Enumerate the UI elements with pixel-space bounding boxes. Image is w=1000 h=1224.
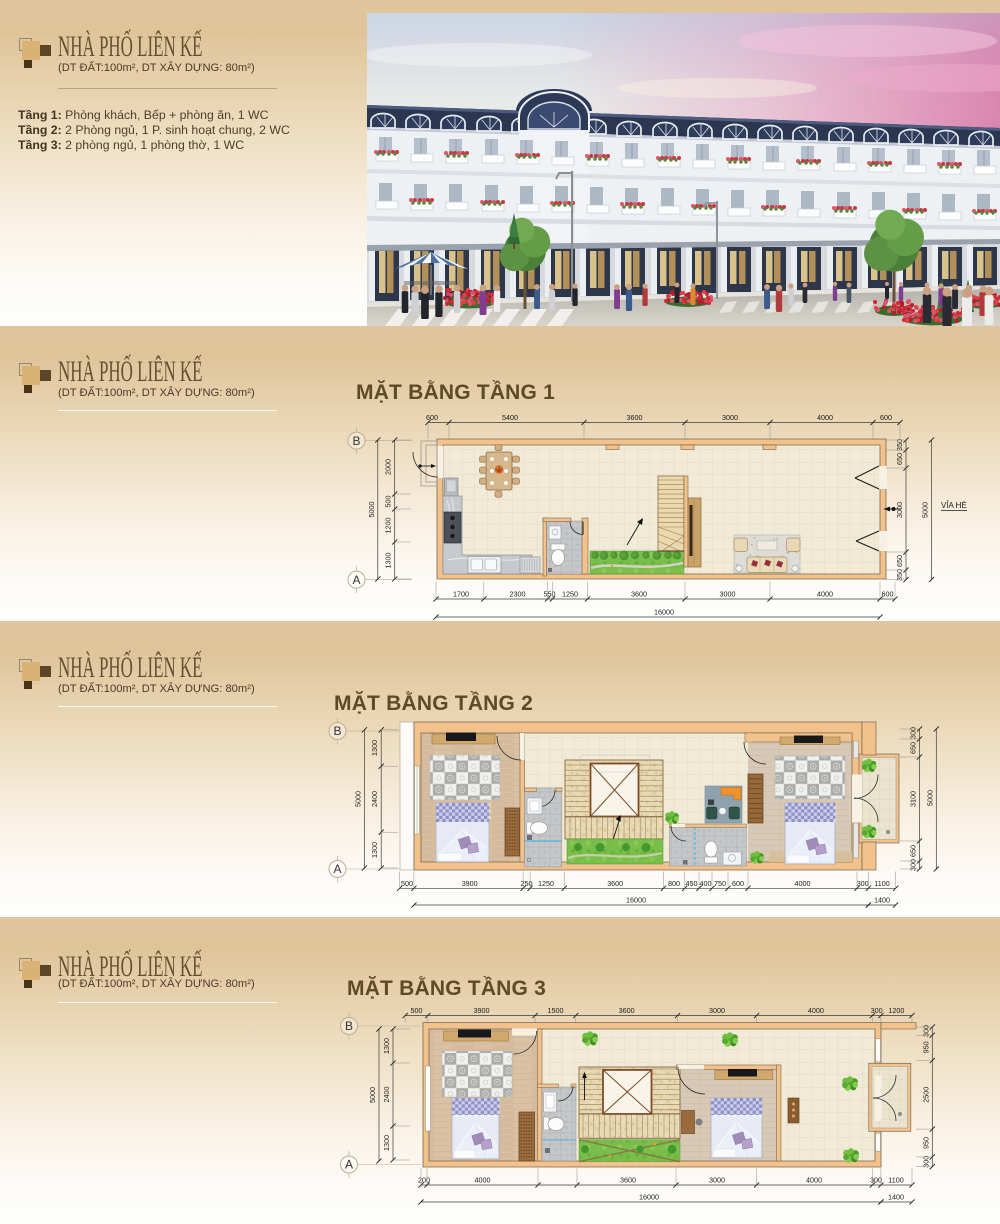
svg-text:1300: 1300 [370,740,379,756]
svg-text:2300: 2300 [510,590,526,599]
svg-text:4000: 4000 [817,413,833,422]
svg-text:600: 600 [732,879,744,888]
svg-text:3600: 3600 [627,413,643,422]
svg-text:300: 300 [871,1006,883,1015]
svg-text:3000: 3000 [720,590,736,599]
svg-text:600: 600 [882,590,894,599]
svg-text:350: 350 [895,439,904,451]
svg-text:1250: 1250 [562,590,578,599]
svg-text:A: A [345,1158,353,1172]
svg-text:B: B [352,434,360,448]
svg-text:1300: 1300 [384,553,393,569]
svg-text:250: 250 [521,879,533,888]
svg-text:950: 950 [921,1137,930,1149]
svg-text:1700: 1700 [453,590,469,599]
svg-text:3900: 3900 [462,879,478,888]
svg-text:750: 750 [714,879,726,888]
svg-text:650: 650 [909,742,918,754]
svg-text:200: 200 [418,1176,430,1185]
svg-text:3000: 3000 [709,1006,725,1015]
svg-text:2400: 2400 [370,791,379,807]
svg-text:1400: 1400 [888,1193,904,1202]
svg-text:1400: 1400 [874,896,890,905]
svg-text:650: 650 [895,453,904,465]
svg-text:3600: 3600 [631,590,647,599]
svg-text:4000: 4000 [817,590,833,599]
svg-text:2000: 2000 [384,459,393,475]
svg-text:B: B [333,724,341,738]
svg-text:500: 500 [411,1006,423,1015]
svg-text:1300: 1300 [370,842,379,858]
svg-text:5000: 5000 [368,1087,377,1103]
svg-text:4000: 4000 [475,1176,491,1185]
svg-text:5000: 5000 [921,502,930,518]
svg-text:600: 600 [880,413,892,422]
svg-text:3000: 3000 [709,1176,725,1185]
svg-text:1100: 1100 [874,879,889,888]
svg-text:950: 950 [921,1041,930,1053]
svg-text:3900: 3900 [474,1006,490,1015]
svg-text:300: 300 [921,1156,930,1168]
svg-text:16000: 16000 [626,896,646,905]
svg-text:VỈA HÈ: VỈA HÈ [941,501,967,510]
svg-text:400: 400 [700,879,712,888]
svg-text:3600: 3600 [607,879,623,888]
svg-text:2500: 2500 [921,1087,930,1103]
svg-text:350: 350 [895,569,904,581]
svg-text:500: 500 [384,496,393,508]
svg-text:300: 300 [857,879,869,888]
svg-text:450: 450 [686,879,698,888]
svg-text:1200: 1200 [888,1006,904,1015]
svg-text:16000: 16000 [639,1193,659,1202]
svg-text:1200: 1200 [384,518,393,534]
svg-text:550: 550 [544,590,556,599]
svg-text:3000: 3000 [722,413,738,422]
svg-text:3600: 3600 [620,1176,636,1185]
svg-text:4000: 4000 [806,1176,822,1185]
svg-text:5000: 5000 [925,790,934,806]
svg-text:1250: 1250 [538,879,554,888]
svg-text:1300: 1300 [382,1038,391,1054]
svg-text:4000: 4000 [795,879,811,888]
svg-text:650: 650 [909,845,918,857]
svg-text:B: B [345,1019,353,1033]
svg-text:3000: 3000 [895,502,904,518]
svg-text:5000: 5000 [367,502,376,518]
svg-text:500: 500 [401,879,413,888]
svg-text:300: 300 [870,1176,882,1185]
svg-text:16000: 16000 [654,608,674,617]
svg-text:1100: 1100 [888,1176,903,1185]
svg-text:5400: 5400 [502,413,518,422]
svg-text:A: A [333,862,341,876]
svg-text:1500: 1500 [548,1006,564,1015]
svg-text:4000: 4000 [808,1006,824,1015]
svg-text:800: 800 [668,879,680,888]
svg-text:5000: 5000 [353,791,362,807]
svg-text:A: A [352,573,360,587]
svg-text:600: 600 [426,413,438,422]
svg-text:3100: 3100 [909,791,918,807]
svg-text:2400: 2400 [382,1087,391,1103]
svg-text:3600: 3600 [619,1006,635,1015]
svg-text:1300: 1300 [382,1135,391,1151]
svg-text:650: 650 [895,555,904,567]
